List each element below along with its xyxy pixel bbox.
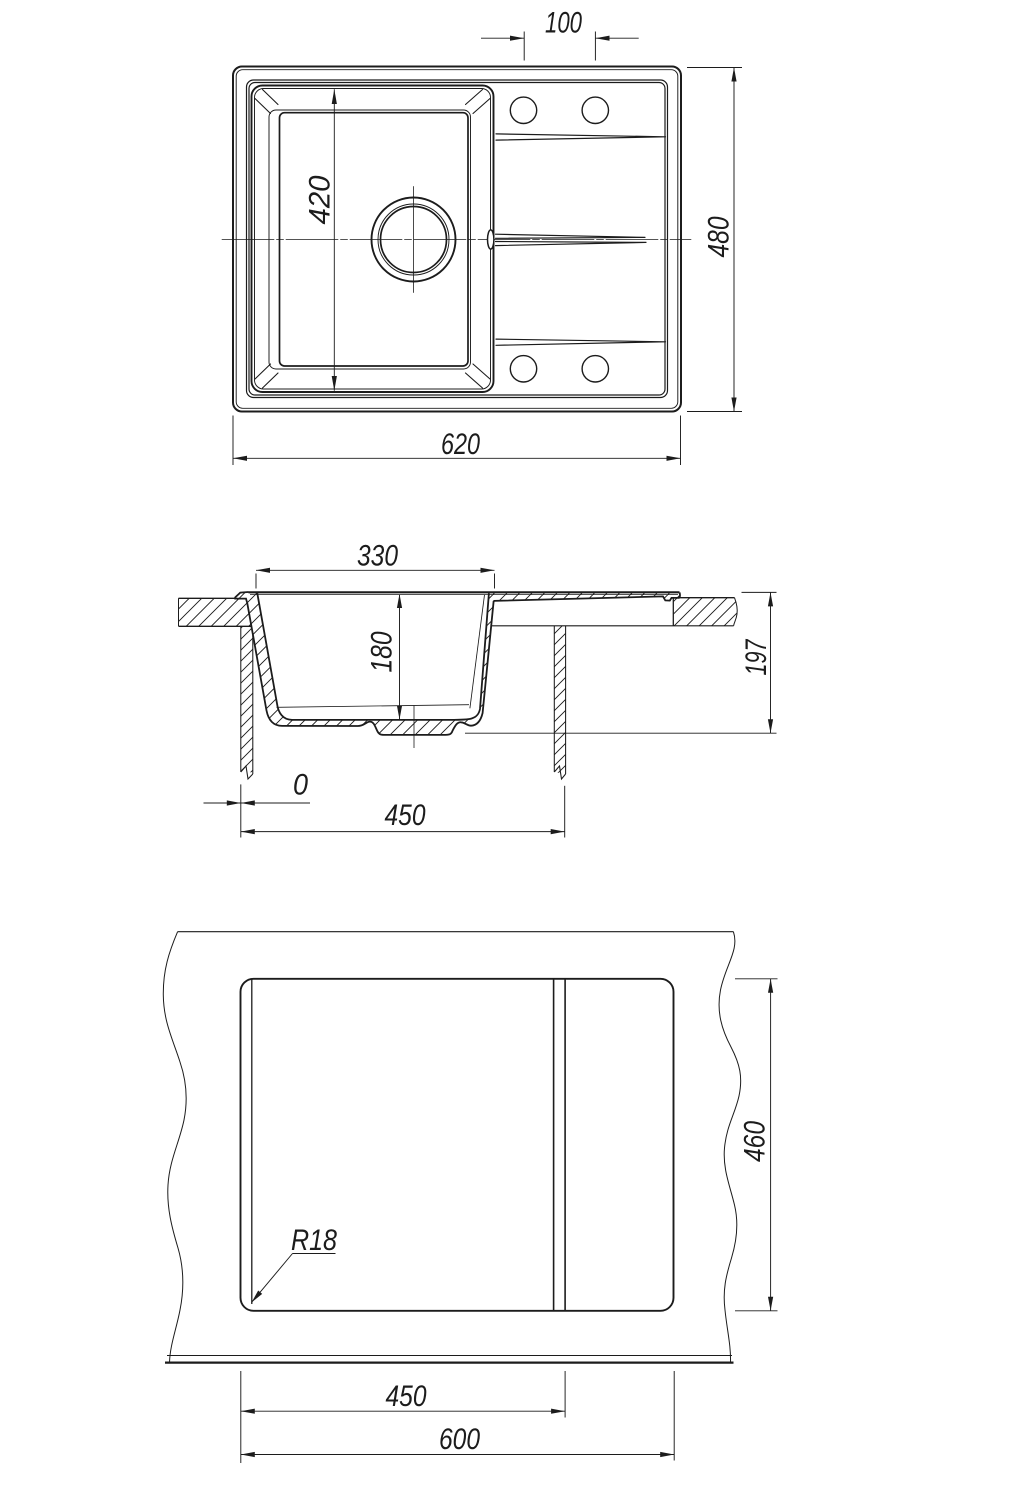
svg-text:620: 620 — [441, 428, 480, 461]
svg-text:420: 420 — [304, 175, 337, 224]
svg-text:450: 450 — [386, 1380, 427, 1413]
svg-text:480: 480 — [703, 216, 736, 257]
svg-text:180: 180 — [366, 631, 399, 672]
svg-text:330: 330 — [357, 540, 398, 573]
svg-text:460: 460 — [739, 1121, 772, 1162]
svg-text:450: 450 — [385, 799, 426, 832]
svg-text:197: 197 — [740, 639, 773, 676]
svg-text:600: 600 — [439, 1423, 480, 1456]
svg-text:100: 100 — [545, 7, 582, 40]
svg-text:0: 0 — [293, 769, 308, 802]
svg-text:R18: R18 — [291, 1224, 337, 1257]
